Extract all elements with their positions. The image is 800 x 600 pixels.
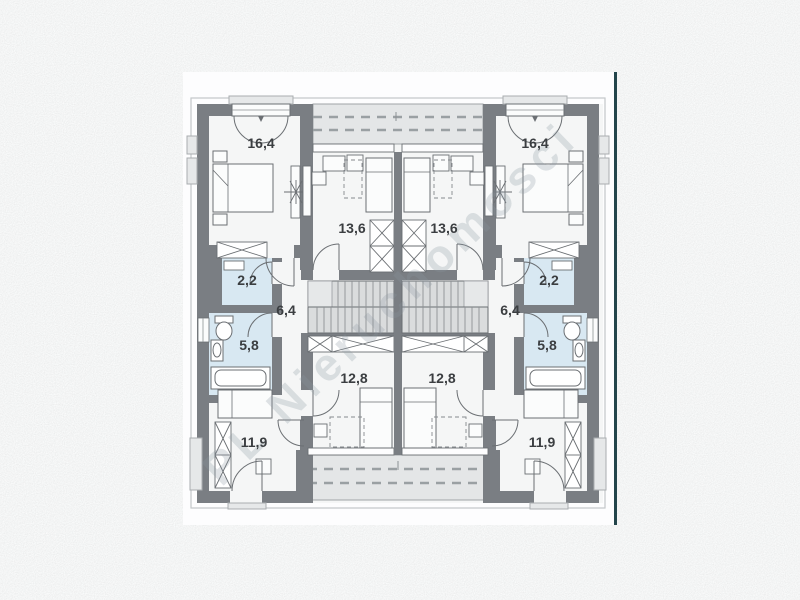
wardrobe-icon <box>370 220 394 272</box>
room-area-label: 12,8 <box>428 370 455 386</box>
room-area-label: 5,8 <box>537 337 557 353</box>
room-area-label: 11,9 <box>529 434 556 450</box>
room-area-label: 13,6 <box>338 220 365 236</box>
window-bath <box>198 318 209 342</box>
shelf-icon <box>224 261 244 270</box>
room-area-label: 12,8 <box>340 370 367 386</box>
room-area-label: 13,6 <box>430 220 457 236</box>
knee-wall-top <box>313 144 394 152</box>
screenshot-canvas: PL Nieruchomosci 16,4 16,4 13,6 13,6 2,2… <box>0 0 800 600</box>
room-area-label: 2,2 <box>237 272 257 288</box>
room-area-label: 6,4 <box>276 302 296 318</box>
room-area-label: 11,9 <box>241 434 268 450</box>
room-area-label: 16,4 <box>247 135 274 151</box>
toilet-icon <box>216 322 232 340</box>
room-area-label: 2,2 <box>539 272 559 288</box>
room-area-label: 5,8 <box>239 337 259 353</box>
room-area-label: 6,4 <box>500 302 520 318</box>
room-area-label: 16,4 <box>521 135 548 151</box>
terrace-band-bottom <box>308 455 488 500</box>
wardrobe-icon <box>217 242 267 258</box>
floor-plan: PL Nieruchomosci 16,4 16,4 13,6 13,6 2,2… <box>0 0 800 600</box>
knee-wall-bottom <box>308 448 394 455</box>
terrace-band-top <box>313 104 483 144</box>
